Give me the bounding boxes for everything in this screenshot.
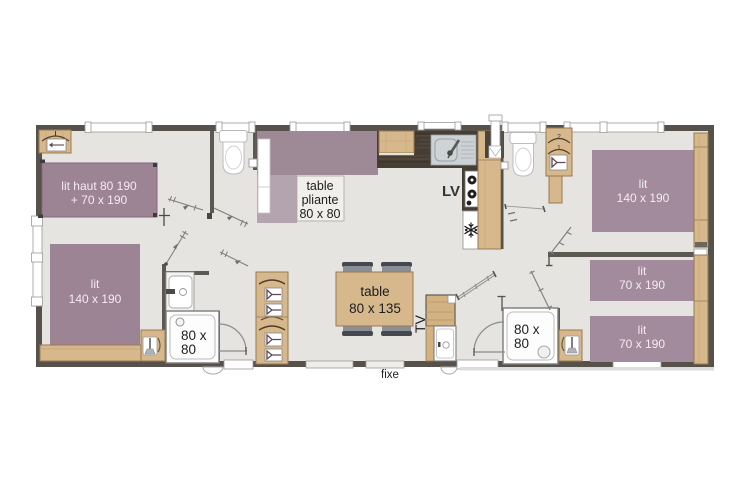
svg-text:table: table <box>360 284 389 299</box>
svg-text:80 x 80: 80 x 80 <box>299 207 340 221</box>
svg-text:lit: lit <box>638 323 647 337</box>
svg-text:140 x 190: 140 x 190 <box>69 292 122 306</box>
svg-text:fixe: fixe <box>381 369 399 381</box>
svg-text:lit: lit <box>91 277 100 291</box>
svg-text:80 x: 80 x <box>181 328 207 343</box>
svg-text:80 x: 80 x <box>514 322 540 337</box>
svg-text:80 x 135: 80 x 135 <box>349 301 401 316</box>
svg-text:lit: lit <box>638 264 647 278</box>
svg-text:table: table <box>306 179 333 193</box>
svg-text:lit: lit <box>639 177 648 191</box>
svg-text:80: 80 <box>514 336 529 351</box>
svg-text:+ 70 x 190: + 70 x 190 <box>71 193 128 207</box>
svg-text:LV: LV <box>442 183 460 200</box>
svg-text:80: 80 <box>181 342 196 357</box>
svg-text:70 x 190: 70 x 190 <box>619 278 665 292</box>
svg-text:1: 1 <box>557 145 561 152</box>
svg-text:70 x 190: 70 x 190 <box>619 337 665 351</box>
svg-text:2: 2 <box>557 134 561 141</box>
svg-text:pliante: pliante <box>302 193 339 207</box>
svg-text:lit haut 80 190: lit haut 80 190 <box>61 179 137 193</box>
svg-text:140 x 190: 140 x 190 <box>617 191 670 205</box>
